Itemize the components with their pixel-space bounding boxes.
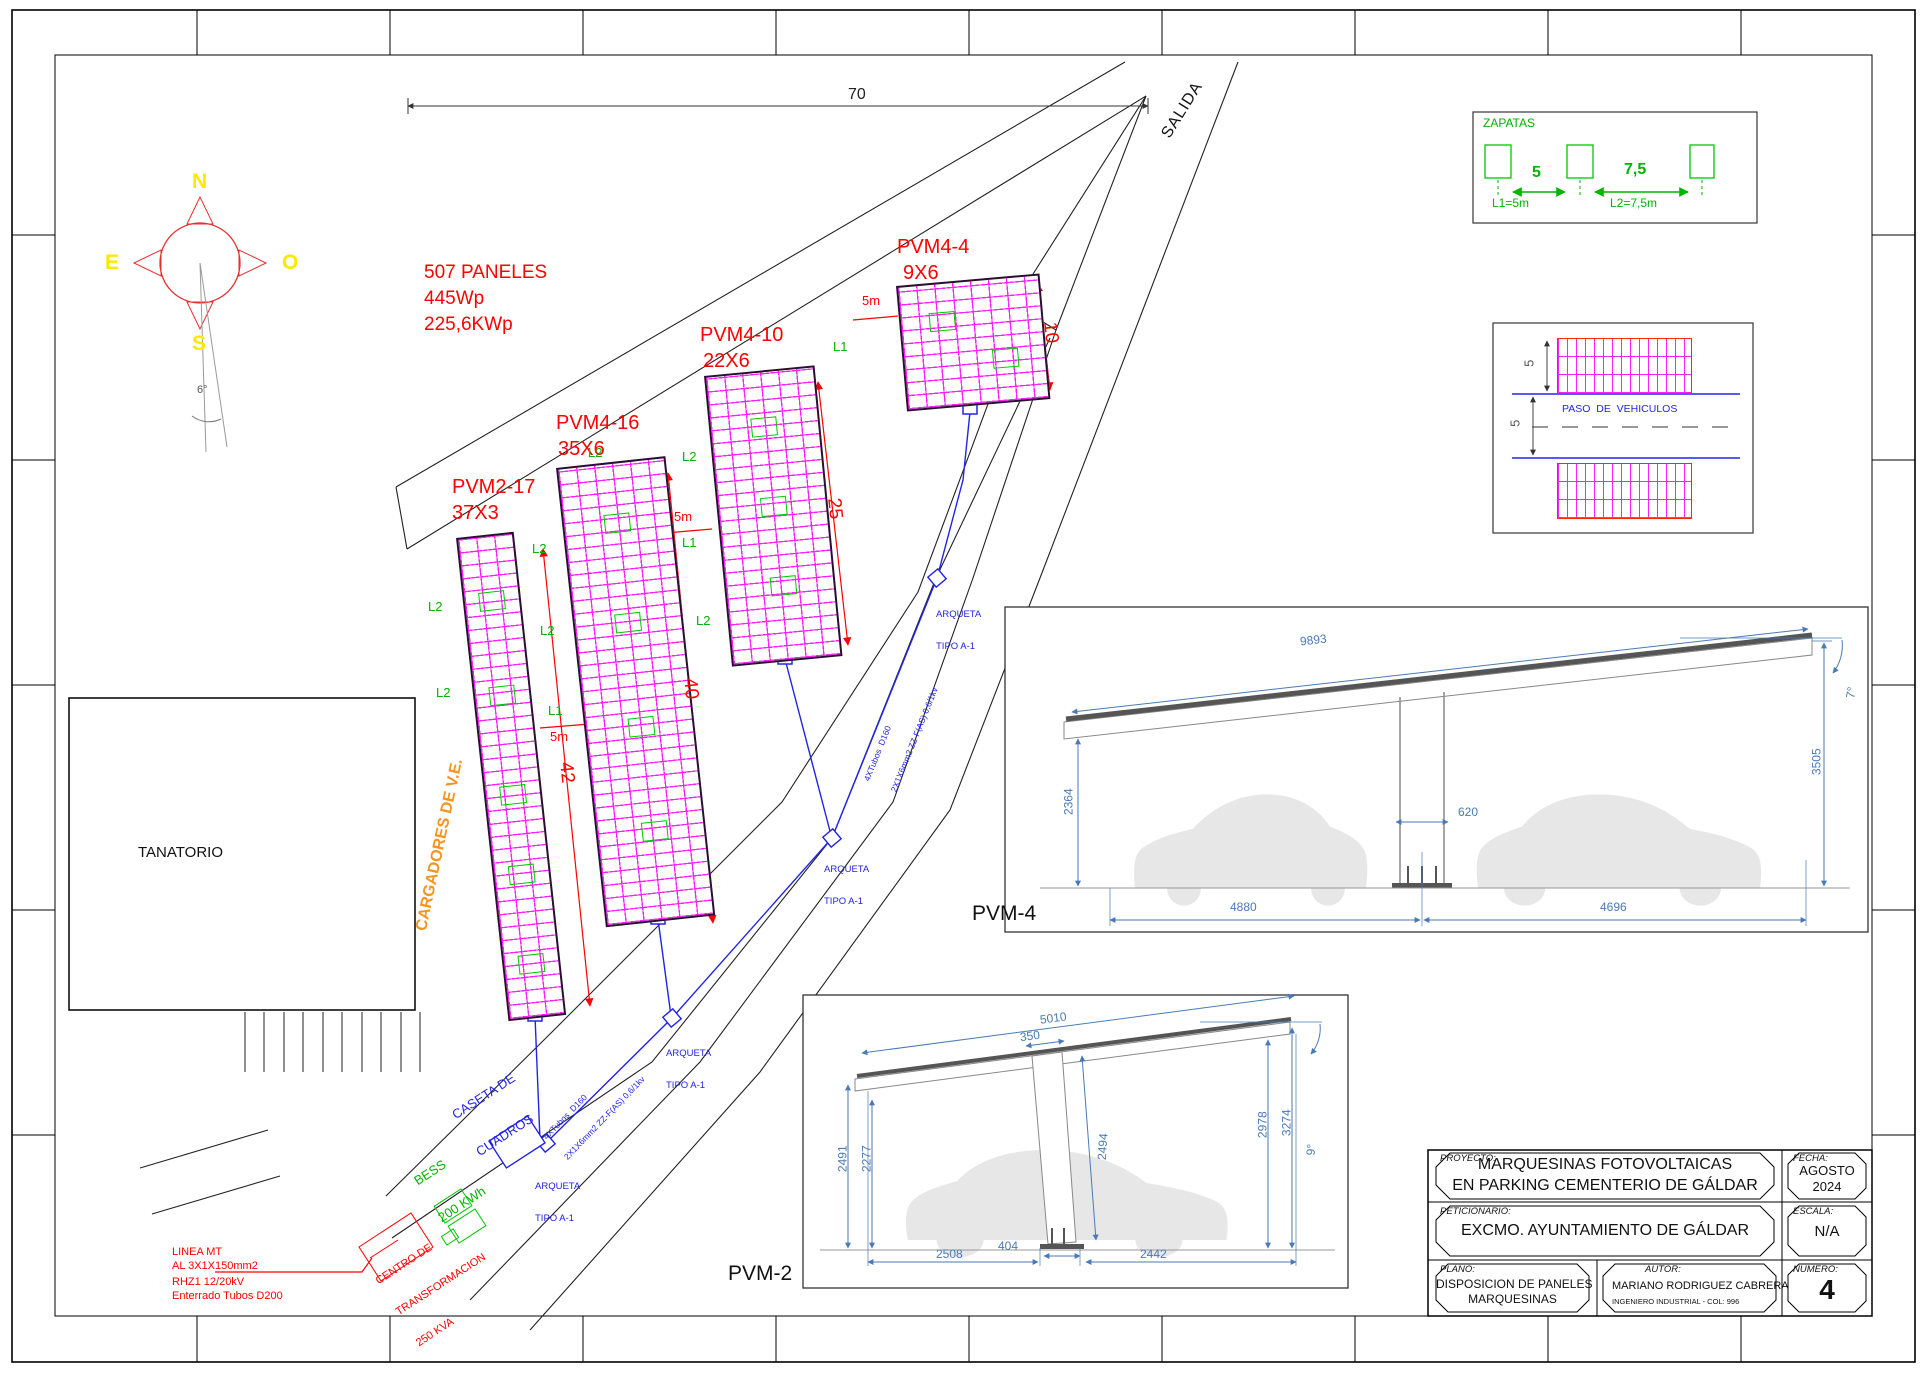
pvm2-column-length: 2494: [1096, 1133, 1111, 1161]
mt-line1: LINEA MT: [172, 1246, 222, 1258]
pvm4-span-right: 4696: [1600, 901, 1627, 914]
pvm4-column-width: 620: [1458, 806, 1478, 819]
dim-40: 40: [679, 677, 702, 700]
junction-box: [750, 416, 778, 437]
panel-summary-line1: 507 PANELES: [424, 262, 547, 283]
mt-line4: Enterrado Tubos D200: [172, 1290, 283, 1302]
mt-line3: RHZ1 12/20kV: [172, 1276, 244, 1288]
zapatas-l2: L2=7,5m: [1610, 197, 1657, 210]
l2-label: L2: [696, 614, 710, 629]
junction-box: [603, 512, 631, 534]
dim-25: 25: [823, 497, 846, 520]
l2-label: L2: [682, 450, 696, 465]
junction-box: [627, 716, 655, 738]
junction-box: [508, 864, 536, 886]
pvm4-span-left: 4880: [1230, 901, 1257, 914]
compass-e: E: [105, 251, 119, 275]
l2-label: L2: [532, 542, 546, 557]
pvm2-height-left-inner: 2277: [861, 1145, 874, 1172]
pvm4-section-label: PVM-4: [972, 902, 1036, 926]
junction-box: [614, 612, 642, 634]
tb-plano-line1: DISPOSICION DE PANELES: [1436, 1278, 1589, 1291]
tb-escala-label: ESCALA:: [1793, 1207, 1833, 1218]
pvm2-angle: 9°: [1305, 1143, 1319, 1156]
paso-dim-top: 5: [1522, 360, 1537, 367]
gap3-5m: 5m: [862, 294, 880, 309]
junction-box: [478, 590, 506, 612]
compass-angle: 6°: [197, 384, 208, 396]
zapatas-dim1: 5: [1532, 164, 1541, 182]
arqueta-line1: ARQUETA: [535, 1182, 580, 1193]
bess-line1: BESS: [412, 1147, 465, 1188]
junction-box: [517, 953, 545, 975]
tb-autor-name: MARIANO RODRIGUEZ CABRERA: [1612, 1280, 1789, 1292]
junction-box: [488, 685, 516, 707]
gap2-5m: 5m: [674, 510, 692, 525]
dim-10: 10: [1039, 321, 1062, 344]
l2-label: L2: [428, 600, 442, 615]
gap1-l1: L1: [548, 704, 562, 719]
tb-numero-value: 4: [1788, 1274, 1866, 1305]
gap2-l1: L1: [682, 536, 696, 551]
tb-autor-title: INGENIERO INDUSTRIAL - COL: 996: [1612, 1298, 1739, 1306]
array1-size: 37X3: [452, 502, 499, 524]
arqueta-label: ARQUETA TIPO A-1: [666, 1028, 711, 1102]
paso-panel-bottom: [1557, 463, 1692, 519]
dim-70: 70: [848, 86, 866, 104]
pvm4-height-right: 3505: [1811, 748, 1824, 775]
arqueta-line2: TIPO A-1: [936, 642, 981, 653]
junction-box: [760, 496, 788, 517]
compass-s: S: [192, 332, 206, 356]
pvm2-base-center: 404: [998, 1240, 1018, 1253]
compass-o: O: [282, 251, 298, 275]
pvm2-base-left: 2508: [936, 1248, 963, 1261]
junction-box: [992, 348, 1020, 369]
junction-box: [929, 311, 957, 332]
tb-proyecto-line1: MARQUESINAS FOTOVOLTAICAS: [1436, 1156, 1774, 1174]
tb-plano-line2: MARQUESINAS: [1436, 1293, 1589, 1306]
junction-box: [641, 820, 669, 842]
pvm4-height-left: 2364: [1063, 788, 1076, 815]
arqueta-line2: TIPO A-1: [666, 1081, 711, 1092]
paso-dim-lane: 5: [1508, 420, 1523, 427]
pvm2-detail: [803, 995, 1348, 1288]
pvm4-detail: [1005, 607, 1868, 932]
junction-box: [499, 784, 527, 806]
array4-name: PVM4-4: [897, 236, 969, 258]
arqueta-line1: ARQUETA: [666, 1049, 711, 1060]
arqueta-line2: TIPO A-1: [824, 897, 869, 908]
pvm2-column-top: 350: [1019, 1029, 1041, 1045]
pvm4-angle: 7°: [1844, 686, 1859, 700]
pv-array-pvm4-4: [896, 273, 1050, 411]
arqueta-label: ARQUETA TIPO A-1: [824, 844, 869, 918]
pvm2-base-right: 2442: [1140, 1248, 1167, 1261]
l2-label: L2: [540, 624, 554, 639]
l2-label: L2: [436, 686, 450, 701]
paso-label: PASO DE VEHICULOS: [1562, 404, 1677, 416]
array1-name: PVM2-17: [452, 476, 535, 498]
mt-line2: AL 3X1X150mm2: [172, 1260, 258, 1272]
arqueta-label: ARQUETA TIPO A-1: [535, 1161, 580, 1235]
caseta-line1: CASETA DE: [450, 1071, 518, 1122]
pvm2-height-left-outer: 2491: [837, 1145, 850, 1172]
pvm2-height-right-inner: 2978: [1257, 1111, 1270, 1138]
gap3-l1: L1: [833, 340, 847, 355]
paso-panel-top: [1557, 338, 1692, 394]
pvm2-section-label: PVM-2: [728, 1262, 792, 1286]
arqueta-label: ARQUETA TIPO A-1: [936, 589, 981, 663]
array3-size: 22X6: [703, 350, 750, 372]
tb-escala-value: N/A: [1788, 1224, 1866, 1241]
panel-summary-line3: 225,6KWp: [424, 314, 513, 335]
arqueta-line1: ARQUETA: [824, 865, 869, 876]
compass-icon: [134, 197, 266, 452]
array3-name: PVM4-10: [700, 324, 783, 346]
panel-summary-line2: 445Wp: [424, 288, 484, 309]
junction-box: [770, 575, 798, 596]
dim-42: 42: [555, 761, 578, 784]
tb-peticionario-value: EXCMO. AYUNTAMIENTO DE GÁLDAR: [1436, 1222, 1774, 1240]
zapatas-title: ZAPATAS: [1483, 117, 1535, 130]
drawing-sheet: N E O S 6° 507 PANELES 445Wp 225,6KWp 70…: [0, 0, 1927, 1373]
gap1-5m: 5m: [550, 730, 568, 745]
zapatas-dim2: 7,5: [1624, 161, 1646, 179]
tb-autor-label: AUTOR:: [1645, 1265, 1681, 1276]
dim-70-line: [408, 98, 1148, 114]
arqueta-line2: TIPO A-1: [535, 1214, 580, 1225]
tb-fecha-line2: 2024: [1788, 1180, 1866, 1195]
l2-label: L2: [588, 446, 602, 461]
tb-fecha-line1: AGOSTO: [1788, 1164, 1866, 1179]
tb-proyecto-line2: EN PARKING CEMENTERIO DE GÁLDAR: [1436, 1177, 1774, 1195]
tb-plano-label: PLANO:: [1440, 1265, 1475, 1276]
compass-n: N: [192, 170, 207, 194]
zapatas-l1: L1=5m: [1492, 197, 1529, 210]
tanatorio-building: [69, 698, 420, 1072]
pvm2-height-right-outer: 3274: [1281, 1109, 1294, 1136]
arqueta-line1: ARQUETA: [936, 610, 981, 621]
tb-peticionario-label: PETICIONARIO:: [1440, 1207, 1511, 1218]
array2-name: PVM4-16: [556, 412, 639, 434]
array4-size: 9X6: [903, 262, 939, 284]
tanatorio-label: TANATORIO: [138, 845, 223, 862]
